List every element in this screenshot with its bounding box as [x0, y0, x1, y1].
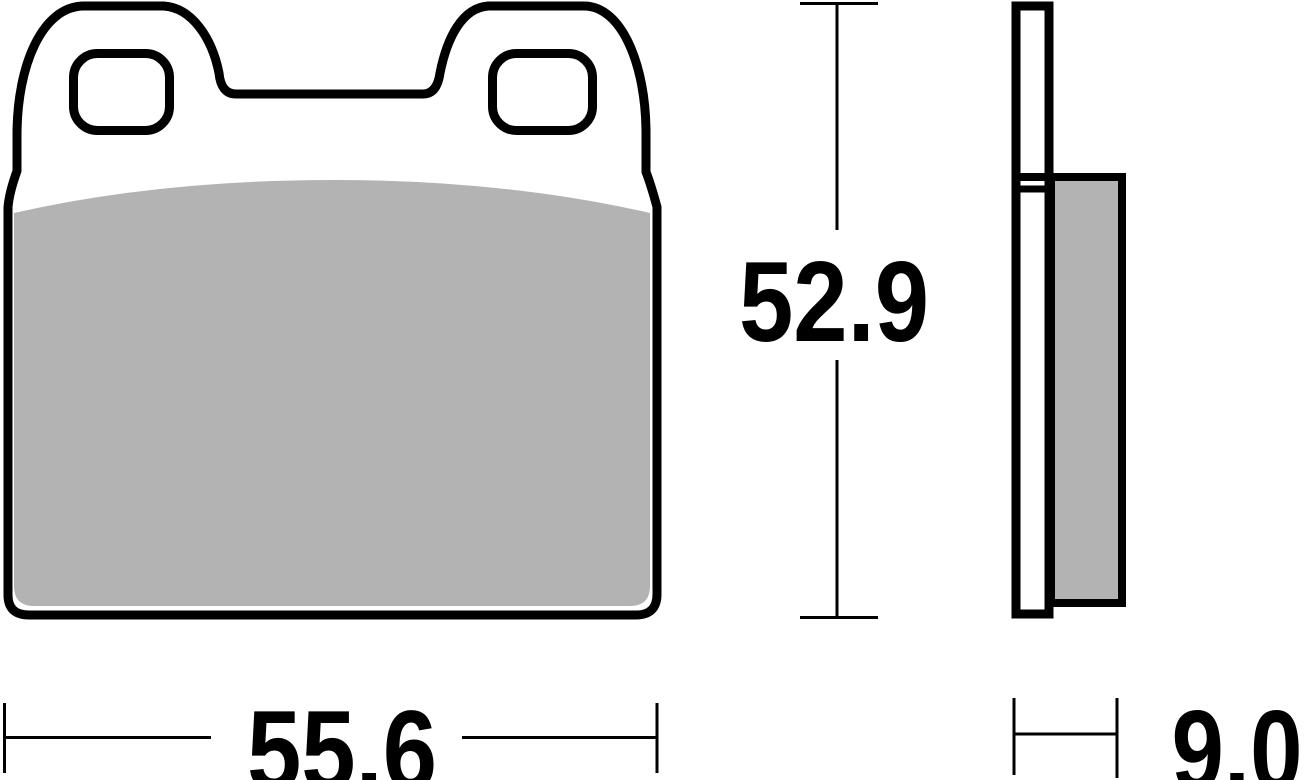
height-dim-label: 52.9 — [739, 239, 929, 366]
width-dimension: 55.6 — [5, 688, 658, 780]
mounting-hole-left — [74, 54, 170, 131]
thickness-dimension: 9.0 — [1014, 688, 1303, 780]
width-dim-label: 55.6 — [247, 688, 437, 780]
thickness-dim-label: 9.0 — [1172, 688, 1303, 780]
drawing-canvas: 52.9 55.6 9.0 — [0, 0, 1304, 780]
friction-material-side — [1051, 177, 1122, 603]
side-view — [1012, 6, 1122, 614]
friction-material-front — [14, 180, 650, 606]
mounting-hole-right — [493, 54, 593, 131]
height-dimension: 52.9 — [739, 4, 929, 618]
front-view — [8, 6, 657, 615]
brake-pad-diagram: 52.9 55.6 9.0 — [0, 0, 1304, 780]
backing-plate-side — [1016, 6, 1049, 614]
